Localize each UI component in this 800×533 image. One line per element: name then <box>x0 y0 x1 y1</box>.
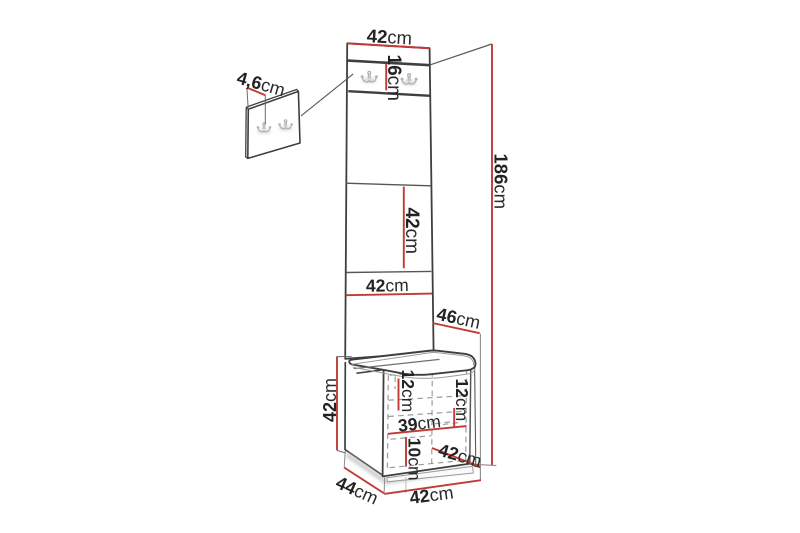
svg-text:42cm: 42cm <box>366 275 409 296</box>
svg-text:10cm: 10cm <box>405 438 425 481</box>
svg-text:12cm: 12cm <box>398 370 418 413</box>
svg-text:12cm: 12cm <box>452 379 472 422</box>
svg-text:16cm: 16cm <box>383 55 404 101</box>
svg-text:42cm: 42cm <box>320 378 340 422</box>
svg-text:186cm: 186cm <box>491 154 512 210</box>
svg-text:42cm: 42cm <box>401 208 422 254</box>
svg-text:42cm: 42cm <box>366 25 412 49</box>
